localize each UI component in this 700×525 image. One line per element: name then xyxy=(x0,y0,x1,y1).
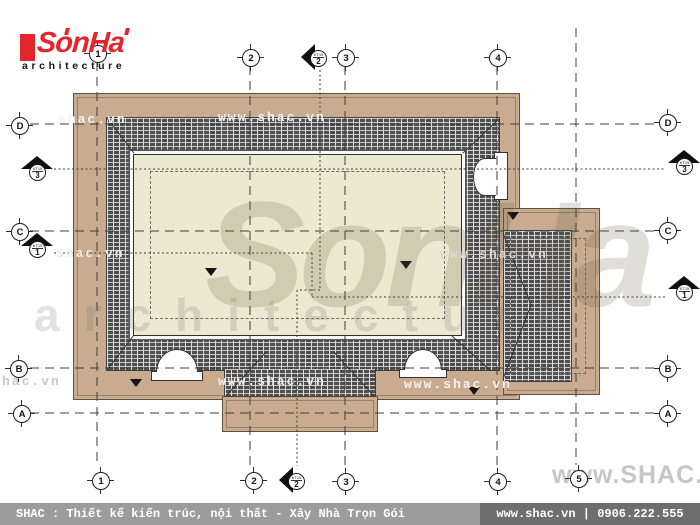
logo-tagline: architecture xyxy=(22,60,125,72)
logo-accent-icon xyxy=(124,28,130,35)
logo-block-icon xyxy=(20,34,35,61)
grid-bubble-bottom-2: 2 xyxy=(240,467,267,494)
slope-arrow-icon xyxy=(507,212,519,220)
grid-bubble-left-D: D xyxy=(6,112,33,139)
section-marker-2-bottom: KT152 xyxy=(279,467,309,494)
extension-inner-dashed xyxy=(510,238,586,374)
grid-bubble-right-A: A xyxy=(654,400,681,427)
grid-bubble-right-B: B xyxy=(654,355,681,382)
section-marker-3-right: KT153 xyxy=(668,150,700,180)
slope-arrow-icon xyxy=(130,379,142,387)
footer-bar: SHAC : Thiết kế kiến trúc, nội thất - Xâ… xyxy=(0,503,700,525)
grid-bubble-bottom-5: 5 xyxy=(565,465,592,492)
grid-bubble-top-4: 4 xyxy=(484,44,511,71)
porch-tile-hatch xyxy=(224,369,376,397)
dormer-frame xyxy=(151,371,203,381)
grid-bubble-bottom-4: 4 xyxy=(484,468,511,495)
roof-plan-drawing: SonHa architecture shac.vn www.shac.vn s… xyxy=(0,0,700,525)
footer-contact-text: www.shac.vn | 0906.222.555 xyxy=(480,503,700,525)
grid-bubble-bottom-3: 3 xyxy=(332,468,359,495)
slope-arrow-icon xyxy=(205,268,217,276)
flat-roof-inner-dashed xyxy=(150,171,445,319)
dormer-arch-right xyxy=(473,158,496,196)
section-marker-1-right: KT151 xyxy=(668,276,700,306)
grid-bubble-left-A: A xyxy=(8,400,35,427)
dormer-frame xyxy=(494,152,508,200)
dormer-frame xyxy=(399,369,447,378)
eave-inner-line xyxy=(226,400,374,428)
section-marker-1-left: KT151 xyxy=(21,233,53,263)
slope-arrow-icon xyxy=(400,261,412,269)
section-marker-3-left: KT153 xyxy=(21,156,53,186)
grid-bubble-top-3: 3 xyxy=(332,44,359,71)
porch-eave xyxy=(222,396,378,432)
section-marker-2-top: KT152 xyxy=(301,44,331,71)
grid-bubble-left-B: B xyxy=(5,355,32,382)
slope-arrow-icon xyxy=(468,387,480,395)
grid-bubble-right-C: C xyxy=(654,217,681,244)
footer-company-text: SHAC : Thiết kế kiến trúc, nội thất - Xâ… xyxy=(0,503,480,525)
grid-bubble-right-D: D xyxy=(654,109,681,136)
grid-bubble-top-2: 2 xyxy=(237,44,264,71)
grid-bubble-bottom-1: 1 xyxy=(87,467,114,494)
logo-brand-text: SonHa xyxy=(36,27,125,60)
